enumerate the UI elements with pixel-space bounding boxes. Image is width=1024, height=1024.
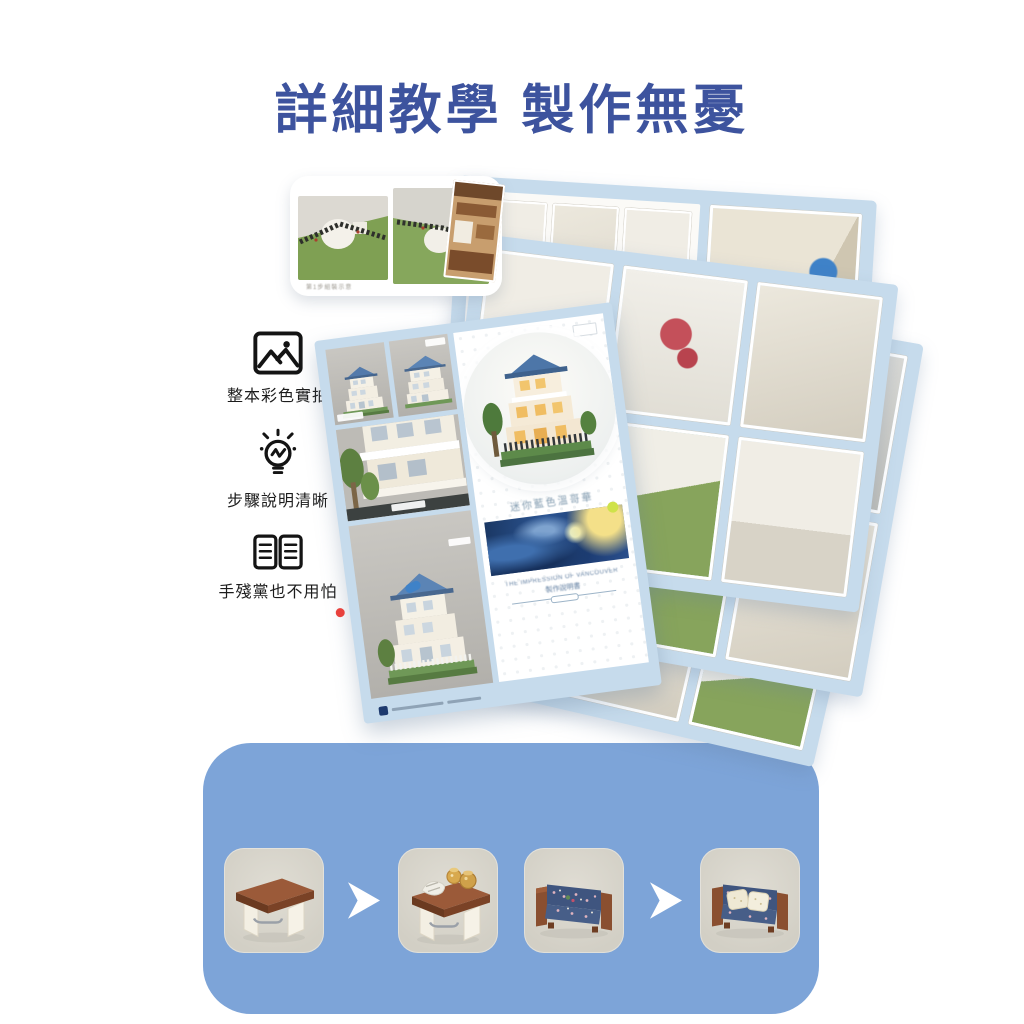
manual-page-photo xyxy=(606,265,749,425)
feature-label: 整本彩色實拍 xyxy=(227,382,329,406)
cover-circle-photo xyxy=(454,323,625,494)
feature-item-clear-steps: 步驟說明清晰 xyxy=(227,428,329,511)
starry-night-strip xyxy=(484,504,629,576)
feature-label: 手殘黨也不用怕 xyxy=(218,578,337,602)
assembly-step-table-decorated xyxy=(398,848,498,953)
brand-text-smudge xyxy=(447,696,481,703)
feature-label: 步驟說明清晰 xyxy=(227,487,329,511)
assembly-steps-row xyxy=(203,848,819,953)
assembly-step-sofa-pillows xyxy=(700,848,800,953)
villa-photo xyxy=(325,342,394,425)
brand-logo xyxy=(378,706,388,716)
paint-dot-red xyxy=(335,608,345,618)
photo-card: 第1步組裝示意 xyxy=(290,176,502,296)
product-promo-page: 詳細教學 製作無憂 xyxy=(0,0,1024,1024)
manual-cover-page: 迷你藍色溫哥華 THE IMPRESSION OF VANCOUVER 製作說明… xyxy=(314,302,662,724)
manual-page-photo xyxy=(740,282,883,442)
photo-card-caption: 第1步組裝示意 xyxy=(306,282,352,291)
lightbulb-icon xyxy=(253,428,303,480)
cover-corner-tag xyxy=(572,322,597,337)
villa-photo xyxy=(349,510,494,699)
villa-closeup-photo xyxy=(336,414,470,521)
manual-page-photo xyxy=(721,437,864,597)
assembly-step-sofa xyxy=(524,848,624,953)
miniature-room-photo xyxy=(443,180,505,288)
photo-icon xyxy=(253,331,303,375)
assembly-panel xyxy=(203,743,819,1014)
feature-item-color-photos: 整本彩色實拍 xyxy=(227,331,329,406)
cover-inner: 迷你藍色溫哥華 THE IMPRESSION OF VANCOUVER 製作說明… xyxy=(325,313,649,699)
lit-villa-illustration xyxy=(468,342,610,476)
photo-label-tag xyxy=(448,537,471,547)
villa-photo xyxy=(389,334,458,417)
brand-text-smudge xyxy=(392,701,444,711)
brand-logo-row xyxy=(378,694,481,716)
assembly-step-table-frame xyxy=(224,848,324,953)
miniature-garden-photo xyxy=(298,196,388,280)
open-book-icon xyxy=(252,533,304,571)
chevron-right-arrow xyxy=(650,882,682,920)
feature-item-beginner-friendly: 手殘黨也不用怕 xyxy=(218,533,337,602)
chevron-right-arrow xyxy=(348,882,380,920)
manual-collage: 第1步組裝示意 xyxy=(0,0,1024,760)
